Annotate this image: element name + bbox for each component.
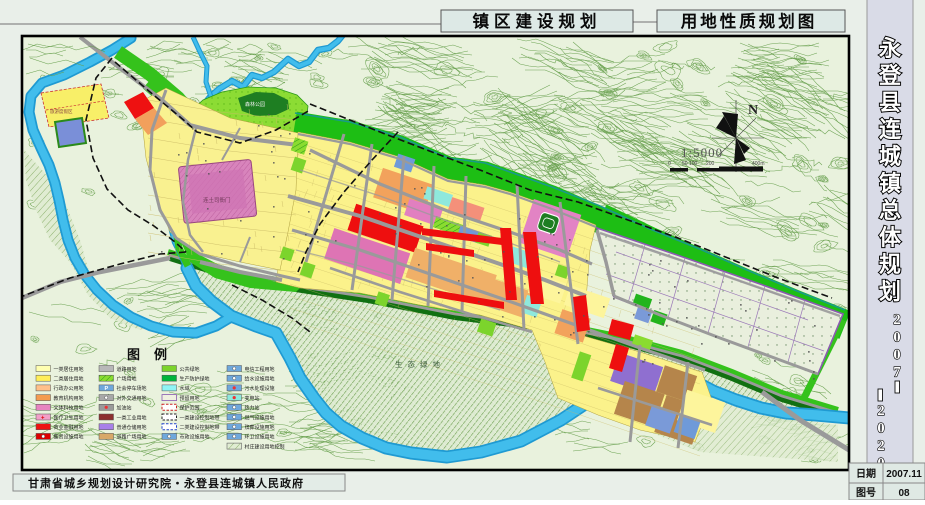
- svg-text:50 100: 50 100: [682, 161, 698, 167]
- svg-text:县: 县: [879, 90, 901, 115]
- svg-text:镇区建设规划: 镇区建设规划: [473, 11, 602, 31]
- svg-text:预留用地: 预留用地: [180, 395, 200, 402]
- svg-text:变电站: 变电站: [245, 395, 260, 402]
- svg-text:给水设施用地: 给水设施用地: [245, 376, 275, 383]
- svg-text:体: 体: [879, 225, 902, 250]
- svg-text:400m: 400m: [752, 161, 765, 167]
- svg-text:7: 7: [893, 365, 900, 381]
- svg-text:森林公园: 森林公园: [245, 101, 265, 108]
- svg-text:永: 永: [879, 36, 901, 61]
- svg-text:旅游度假区: 旅游度假区: [50, 108, 73, 115]
- svg-text:甘肃省城乡规划设计研究院・永登县连城镇人民政府: 甘肃省城乡规划设计研究院・永登县连城镇人民政府: [28, 476, 304, 490]
- svg-text:一类工业用地: 一类工业用地: [117, 414, 147, 421]
- svg-text:电信工程用地: 电信工程用地: [245, 366, 275, 373]
- svg-text:生态绿地: 生态绿地: [395, 359, 445, 369]
- svg-text:镇: 镇: [879, 171, 901, 196]
- svg-text:0: 0: [877, 421, 884, 437]
- svg-text:环卫设施用地: 环卫设施用地: [245, 434, 275, 441]
- svg-text:2: 2: [877, 438, 884, 454]
- svg-text:加油站: 加油站: [117, 405, 132, 412]
- svg-text:+: +: [41, 415, 45, 421]
- svg-text:日期: 日期: [856, 467, 876, 480]
- svg-text:连: 连: [879, 117, 902, 142]
- svg-text:道路广场用地: 道路广场用地: [117, 434, 147, 441]
- svg-text:社会停车场地: 社会停车场地: [117, 385, 147, 392]
- svg-text:殡葬设施用地: 殡葬设施用地: [245, 424, 275, 431]
- svg-text:N: N: [748, 103, 758, 118]
- svg-text:0: 0: [668, 161, 671, 167]
- svg-text:二类建设控制地带: 二类建设控制地带: [180, 424, 220, 431]
- svg-text:划: 划: [879, 279, 901, 304]
- svg-text:文体科技用地: 文体科技用地: [54, 405, 84, 412]
- svg-text:连土司衙门: 连土司衙门: [203, 196, 231, 204]
- svg-text:用地性质规划图: 用地性质规划图: [681, 11, 818, 31]
- svg-text:2007.11: 2007.11: [886, 469, 922, 480]
- svg-text:行政办公用地: 行政办公用地: [54, 385, 84, 392]
- svg-text:公共绿地: 公共绿地: [180, 366, 200, 373]
- svg-text:污水处理设施: 污水处理设施: [245, 385, 275, 392]
- svg-text:普通仓储用地: 普通仓储用地: [117, 424, 147, 431]
- svg-text:08: 08: [898, 488, 910, 499]
- svg-text:城: 城: [879, 144, 901, 169]
- svg-text:广场用地: 广场用地: [117, 376, 137, 383]
- svg-text:登: 登: [878, 63, 902, 88]
- svg-text:对外交通用地: 对外交通用地: [117, 395, 147, 402]
- svg-text:2: 2: [893, 312, 900, 328]
- svg-text:0: 0: [893, 330, 900, 346]
- svg-text:0: 0: [893, 347, 900, 363]
- svg-text:2: 2: [877, 403, 884, 419]
- svg-text:市政设施用地: 市政设施用地: [180, 434, 210, 441]
- svg-text:热力站: 热力站: [245, 405, 260, 412]
- svg-text:燃气设施用地: 燃气设施用地: [245, 414, 275, 421]
- svg-text:P: P: [105, 386, 109, 392]
- svg-text:1:5000: 1:5000: [681, 145, 723, 160]
- svg-text:总: 总: [879, 198, 901, 223]
- svg-text:图号: 图号: [856, 487, 876, 499]
- svg-text:村庄建设用地控制: 村庄建设用地控制: [245, 443, 285, 450]
- svg-text:一类居住用地: 一类居住用地: [54, 366, 84, 373]
- svg-text:200: 200: [706, 161, 715, 167]
- svg-text:规: 规: [879, 252, 901, 277]
- svg-text:教育机构用地: 教育机构用地: [54, 395, 84, 402]
- svg-text:图例: 图例: [127, 347, 181, 362]
- svg-text:道路用地: 道路用地: [117, 366, 137, 373]
- svg-text:保护范围: 保护范围: [180, 405, 200, 412]
- svg-text:水域: 水域: [180, 385, 190, 392]
- svg-text:生产防护绿地: 生产防护绿地: [180, 376, 210, 383]
- svg-text:一类建设控制地带: 一类建设控制地带: [180, 414, 220, 421]
- svg-text:二类居住用地: 二类居住用地: [54, 376, 84, 383]
- svg-text:医疗卫生用地: 医疗卫生用地: [54, 414, 84, 421]
- svg-text:集贸设施用地: 集贸设施用地: [54, 434, 84, 441]
- svg-text:商业金融用地: 商业金融用地: [54, 424, 84, 431]
